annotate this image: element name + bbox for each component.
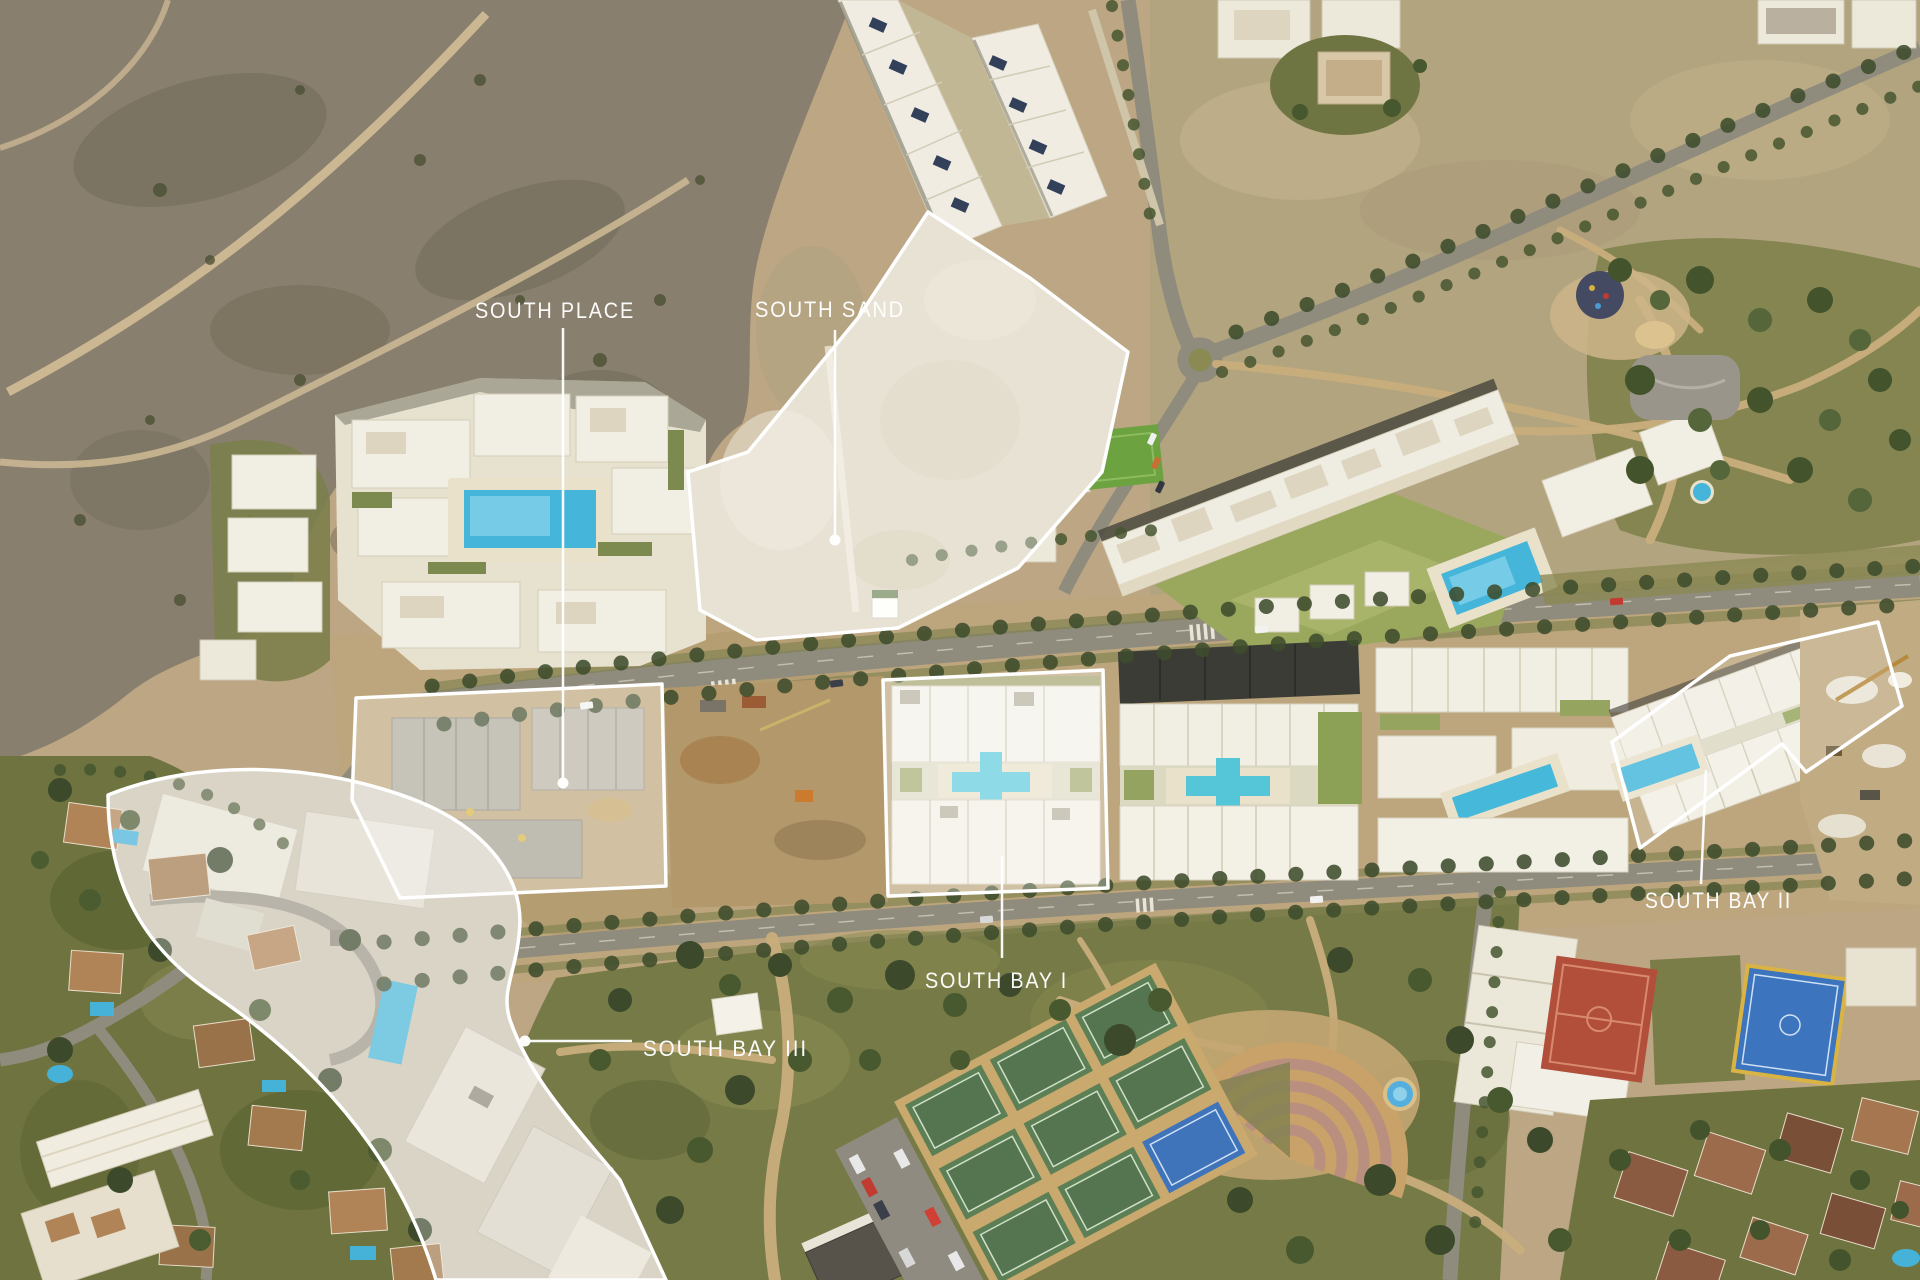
blue-basketball-court <box>1733 966 1847 1085</box>
villa-pool <box>1892 1249 1920 1267</box>
label-south-sand: SOUTH SAND <box>755 297 905 322</box>
park-pavilion <box>712 993 763 1035</box>
aerial-masterplan-screenshot: SOUTH PLACE SOUTH SAND SOUTH BAY I SOUTH… <box>0 0 1920 1280</box>
aerial-map: SOUTH PLACE SOUTH SAND SOUTH BAY I SOUTH… <box>0 0 1920 1280</box>
red-sports-court <box>1541 956 1658 1083</box>
splash-pad <box>1383 1077 1417 1111</box>
construction-dirt-lot <box>664 676 888 908</box>
label-south-bay-2: SOUTH BAY II <box>1645 888 1792 913</box>
label-south-bay-3: SOUTH BAY III <box>643 1036 808 1061</box>
north-roundabout <box>1183 343 1217 377</box>
label-south-place: SOUTH PLACE <box>475 298 635 323</box>
parcel-south-bay-1 <box>883 670 1108 896</box>
middle-band-complex-2 <box>1118 640 1362 880</box>
small-pool <box>1693 483 1711 501</box>
label-south-bay-1: SOUTH BAY I <box>925 968 1068 993</box>
residential-block-far-west <box>200 440 330 681</box>
excavator <box>795 790 813 802</box>
residential-complex-west <box>335 378 706 670</box>
